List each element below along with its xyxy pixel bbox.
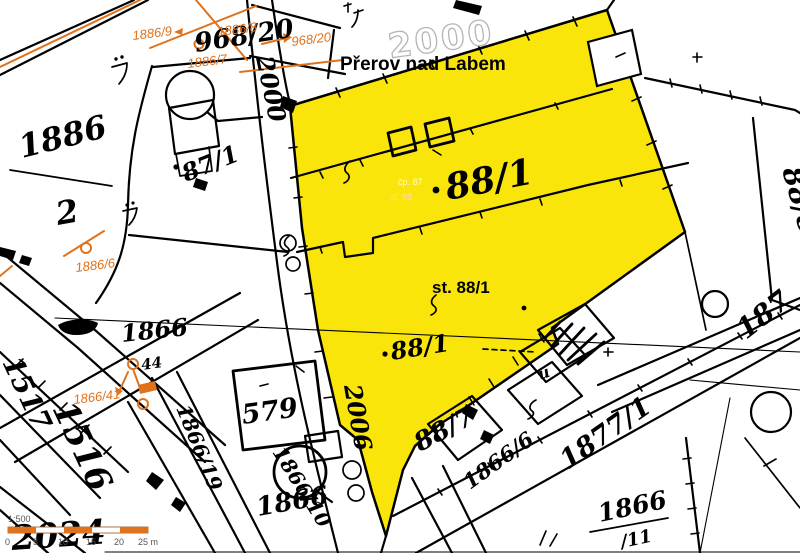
cadastral-map-canvas[interactable]: 968/20 2000 Přerov nad Labem 1886 2 87/1…: [0, 0, 800, 553]
parcel-label-44: 44: [140, 353, 163, 374]
scale-tick-20: 20: [114, 537, 124, 547]
scale-tick-15: 15: [86, 537, 96, 547]
parcel-label-1886-den: 2: [52, 192, 82, 233]
parcel-label-87-1: 87/1: [176, 139, 242, 188]
symbol-u: u: [535, 362, 552, 384]
annotation-label-1886-9: 1886/9: [132, 23, 173, 43]
town-name-label: Přerov nad Labem: [340, 54, 506, 75]
parcel-label-1866-frac-den: /11: [617, 526, 654, 553]
parcel-label-1866-19: 1866/19: [171, 401, 227, 494]
scale-ratio-label: 1:500: [8, 514, 31, 524]
scale-tick-25m: 25 m: [138, 537, 158, 547]
map-viewport[interactable]: 968/20 2000 Přerov nad Labem 1886 2 87/1…: [0, 0, 800, 553]
parcel-label-1886: 1886: [15, 107, 111, 165]
faint-building-label-2: st. 88: [390, 192, 412, 202]
scale-tick-5: 5: [33, 537, 38, 547]
annotation-label-968-20: 968/20: [291, 29, 333, 49]
faint-building-label-1: čp. 87: [398, 177, 423, 187]
parcel-label-1866-frac: 1866: [595, 485, 669, 528]
parcel-label-579: 579: [240, 392, 300, 431]
parcel-label-88-8: 88/8: [775, 162, 800, 238]
parcel-label-1866-6: 1866/6: [458, 426, 538, 494]
scale-tick-0: 0: [5, 537, 10, 547]
annotation-label-1886-7: 1886/7: [187, 51, 229, 71]
annotation-label-1886-6: 1886/6: [75, 255, 117, 275]
parcel-label-1516: 1516: [44, 395, 120, 498]
building-label-st-88-1: st. 88/1: [432, 278, 490, 297]
scale-tick-10: 10: [58, 537, 68, 547]
parcel-label-1866-mid: 1866: [120, 312, 190, 348]
